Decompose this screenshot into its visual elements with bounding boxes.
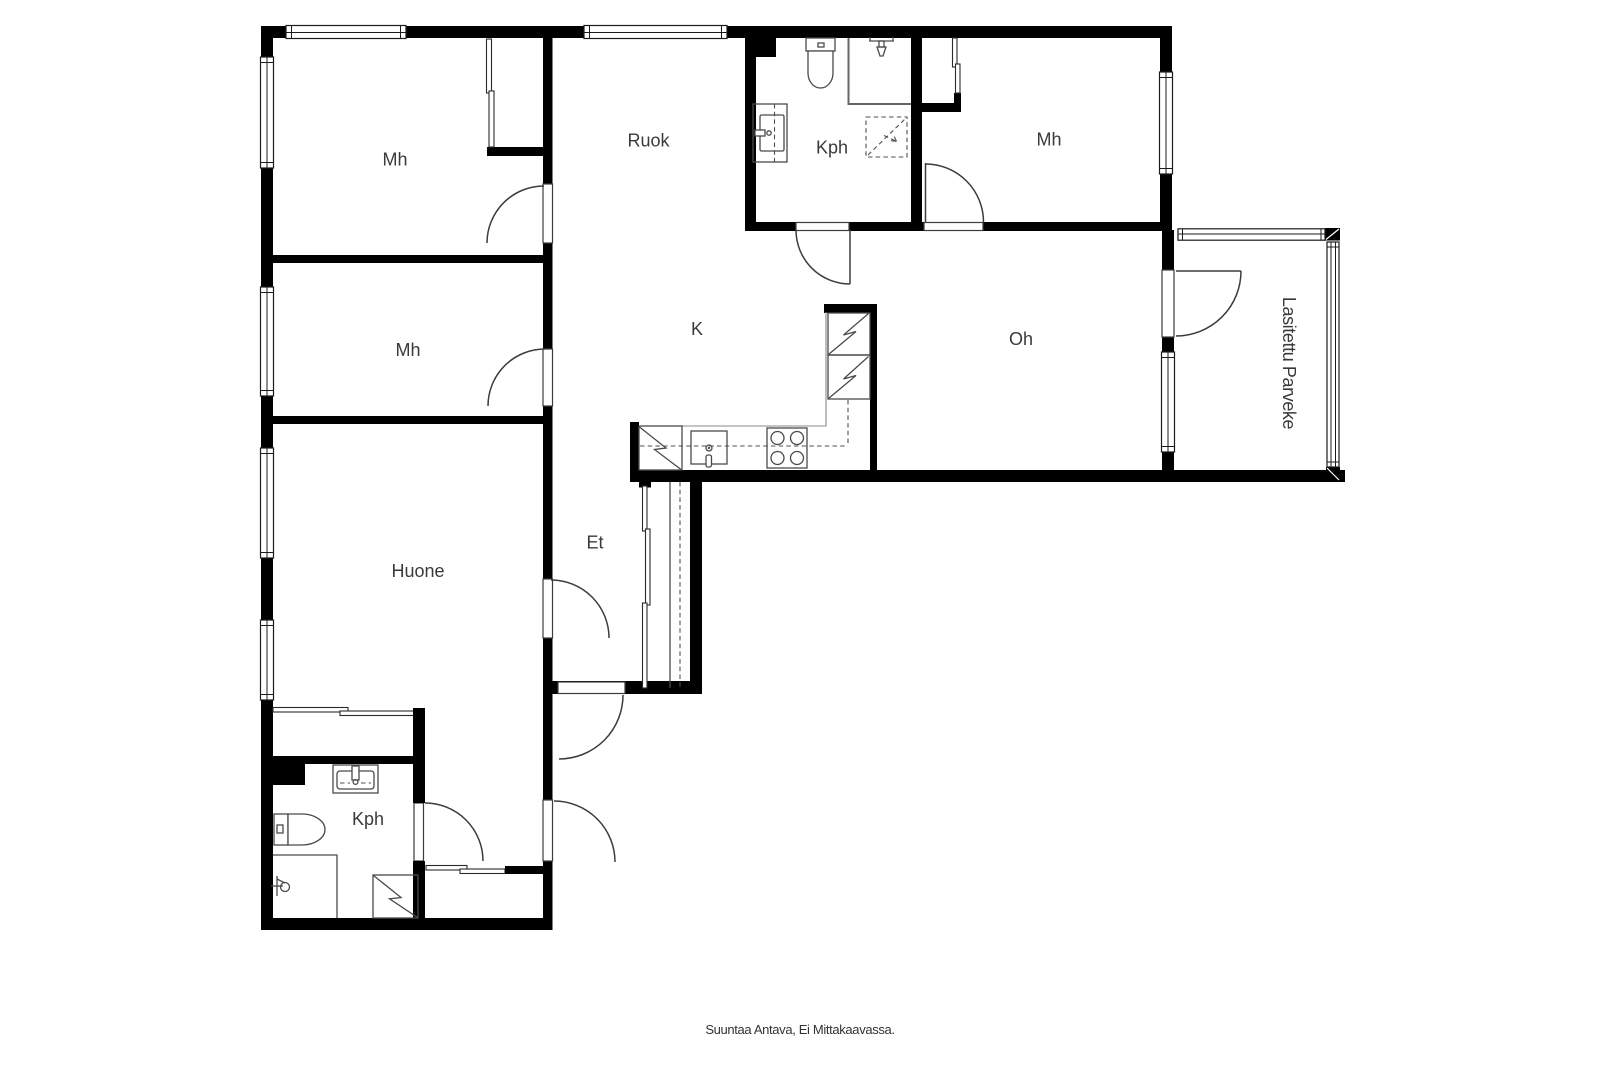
svg-text:Kph: Kph: [816, 138, 848, 158]
svg-text:Ruok: Ruok: [627, 131, 670, 151]
svg-text:K: K: [691, 319, 703, 339]
svg-text:Oh: Oh: [1009, 329, 1033, 349]
svg-text:Et: Et: [586, 533, 603, 553]
svg-text:Suuntaa Antava, Ei Mittakaavas: Suuntaa Antava, Ei Mittakaavassa.: [705, 1022, 894, 1037]
svg-text:Lasitettu Parveke: Lasitettu Parveke: [1279, 297, 1299, 430]
svg-text:Mh: Mh: [1036, 130, 1061, 150]
svg-text:Mh: Mh: [382, 150, 407, 170]
svg-text:Mh: Mh: [395, 340, 420, 360]
svg-text:Kph: Kph: [352, 809, 384, 829]
svg-text:Huone: Huone: [391, 561, 444, 581]
